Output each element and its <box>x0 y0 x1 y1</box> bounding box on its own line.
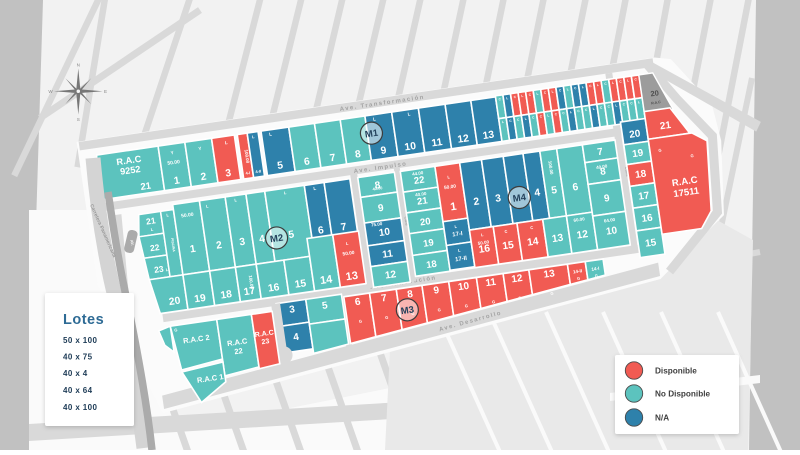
svg-text:N/A: N/A <box>655 414 669 423</box>
svg-text:12: 12 <box>576 229 589 242</box>
svg-text:11: 11 <box>382 248 394 260</box>
svg-text:13: 13 <box>482 129 495 142</box>
svg-text:19: 19 <box>194 293 207 306</box>
svg-text:20: 20 <box>168 296 181 309</box>
svg-text:10: 10 <box>404 141 417 154</box>
svg-text:N: N <box>77 63 80 68</box>
svg-text:11: 11 <box>485 277 497 289</box>
svg-text:M3: M3 <box>400 304 415 317</box>
svg-text:21: 21 <box>659 120 672 133</box>
svg-text:15: 15 <box>502 240 515 253</box>
svg-text:13: 13 <box>345 270 359 284</box>
svg-text:19: 19 <box>422 237 434 249</box>
svg-text:13: 13 <box>551 233 564 246</box>
svg-text:W: W <box>48 89 53 94</box>
svg-text:22: 22 <box>149 242 160 253</box>
svg-text:40 x 64: 40 x 64 <box>63 386 93 395</box>
svg-text:M4: M4 <box>512 192 527 205</box>
svg-text:40 x 4: 40 x 4 <box>63 369 88 378</box>
svg-text:20: 20 <box>650 88 660 98</box>
svg-text:22: 22 <box>234 346 244 356</box>
svg-text:12: 12 <box>457 133 470 146</box>
svg-text:18: 18 <box>426 259 438 271</box>
svg-text:15: 15 <box>294 278 307 291</box>
svg-text:23: 23 <box>153 264 164 275</box>
svg-text:Lotes: Lotes <box>63 312 104 328</box>
svg-text:16: 16 <box>267 282 280 295</box>
svg-text:13: 13 <box>543 268 556 281</box>
svg-text:E: E <box>104 89 107 94</box>
svg-text:No Disponible: No Disponible <box>655 390 710 399</box>
svg-text:Disponible: Disponible <box>655 367 697 376</box>
svg-text:17: 17 <box>638 190 651 203</box>
svg-text:22: 22 <box>413 175 425 187</box>
svg-text:16: 16 <box>641 212 654 225</box>
svg-text:10: 10 <box>457 281 470 294</box>
svg-text:18: 18 <box>220 289 233 302</box>
svg-text:14: 14 <box>526 236 539 249</box>
svg-text:50 x 100: 50 x 100 <box>63 336 97 345</box>
svg-text:18: 18 <box>634 168 647 181</box>
svg-text:12: 12 <box>511 273 524 286</box>
svg-text:11: 11 <box>431 137 444 149</box>
svg-text:15: 15 <box>644 237 657 250</box>
svg-text:40 x 100: 40 x 100 <box>63 403 97 412</box>
svg-text:21: 21 <box>145 215 156 226</box>
svg-text:19: 19 <box>631 148 644 161</box>
svg-text:10: 10 <box>378 227 391 240</box>
svg-text:20: 20 <box>629 128 642 141</box>
svg-text:12: 12 <box>384 269 397 282</box>
svg-text:10: 10 <box>605 225 618 238</box>
svg-text:23: 23 <box>261 338 270 346</box>
svg-text:4-I: 4-I <box>245 170 250 176</box>
svg-text:4-II: 4-II <box>255 169 261 175</box>
svg-text:M1: M1 <box>364 128 379 141</box>
svg-text:M2: M2 <box>269 233 284 246</box>
svg-text:S: S <box>77 117 80 122</box>
svg-text:40 x 75: 40 x 75 <box>63 353 93 362</box>
svg-text:20: 20 <box>419 216 431 228</box>
